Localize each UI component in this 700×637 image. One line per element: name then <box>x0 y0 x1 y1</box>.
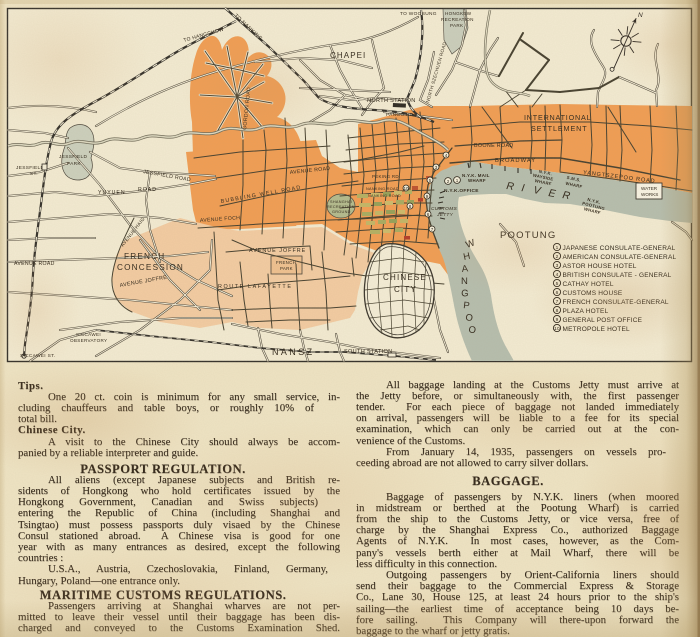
svg-text:GROUND: GROUND <box>332 210 351 214</box>
svg-text:G: G <box>461 288 469 299</box>
svg-text:METROPOLE HOTEL: METROPOLE HOTEL <box>563 326 630 333</box>
svg-text:YUYUEN: YUYUEN <box>98 190 126 196</box>
svg-text:NANKING ROAD: NANKING ROAD <box>366 187 399 191</box>
svg-text:5: 5 <box>429 178 432 183</box>
svg-text:N: N <box>461 276 468 287</box>
svg-text:ST.: ST. <box>30 171 38 177</box>
svg-text:10: 10 <box>403 186 409 191</box>
svg-text:ASTOR HOUSE HOTEL: ASTOR HOUSE HOTEL <box>563 263 637 270</box>
svg-text:SOUTH STATION: SOUTH STATION <box>344 349 392 355</box>
svg-text:JESSFIELD: JESSFIELD <box>59 154 88 160</box>
svg-text:WHARF: WHARF <box>468 178 486 183</box>
svg-text:PEKING RD.: PEKING RD. <box>372 174 400 179</box>
svg-text:NANSZ: NANSZ <box>272 347 315 357</box>
svg-text:AVENUE ROAD: AVENUE ROAD <box>14 261 55 267</box>
svg-text:PARK: PARK <box>67 161 81 167</box>
svg-text:CATHAY HOTEL: CATHAY HOTEL <box>563 281 614 288</box>
svg-text:9: 9 <box>426 194 429 199</box>
svg-text:FRENCH: FRENCH <box>124 252 165 261</box>
svg-text:CHINESE: CHINESE <box>383 273 427 282</box>
svg-text:2: 2 <box>556 254 559 260</box>
svg-text:JETTY: JETTY <box>436 212 454 218</box>
svg-text:RECREATION: RECREATION <box>441 17 474 22</box>
svg-text:FRENCH CONSULATE-GENERAL: FRENCH CONSULATE-GENERAL <box>563 299 669 306</box>
svg-text:SHANGHAI: SHANGHAI <box>330 200 352 204</box>
svg-text:R: R <box>506 180 516 193</box>
svg-text:9: 9 <box>556 317 559 323</box>
svg-text:TO WOOSUNG: TO WOOSUNG <box>400 11 437 17</box>
svg-text:7: 7 <box>556 299 559 305</box>
svg-text:P: P <box>463 300 471 312</box>
svg-text:6: 6 <box>556 290 559 296</box>
svg-text:AMERICAN CONSULATE-GENERAL: AMERICAN CONSULATE-GENERAL <box>563 254 677 261</box>
svg-text:N: N <box>638 12 643 19</box>
svg-text:1: 1 <box>456 178 459 183</box>
svg-text:NANKING ROAD: NANKING ROAD <box>368 194 401 198</box>
svg-text:SETTLEMENT: SETTLEMENT <box>531 124 588 133</box>
svg-text:CUSTOMS: CUSTOMS <box>431 206 457 212</box>
svg-text:GENERAL POST OFFICE: GENERAL POST OFFICE <box>563 317 643 324</box>
svg-text:7: 7 <box>431 227 434 232</box>
svg-text:CHAPEI: CHAPEI <box>330 51 366 60</box>
svg-text:3: 3 <box>435 165 438 170</box>
svg-text:PARK: PARK <box>280 266 293 271</box>
svg-text:CONCESSION: CONCESSION <box>117 263 184 272</box>
svg-text:RECREATION: RECREATION <box>327 205 355 209</box>
svg-text:OBSERVATORY: OBSERVATORY <box>70 338 107 343</box>
svg-text:SICCAWEI: SICCAWEI <box>76 332 101 337</box>
svg-text:PANGO RD.: PANGO RD. <box>386 112 415 118</box>
svg-text:JAPANESE CONSULATE-GENERAL: JAPANESE CONSULATE-GENERAL <box>563 245 676 252</box>
svg-text:ROAD: ROAD <box>138 187 157 193</box>
svg-text:CITY: CITY <box>394 285 417 294</box>
svg-text:N.Y.K.OFFICE: N.Y.K.OFFICE <box>444 188 479 194</box>
svg-text:ROUTE LAFAYETTE: ROUTE LAFAYETTE <box>218 284 293 290</box>
svg-text:INTERNATIONAL: INTERNATIONAL <box>524 113 591 122</box>
svg-text:4: 4 <box>445 153 448 158</box>
svg-text:6: 6 <box>427 212 430 217</box>
svg-text:SICCAWEI ST.: SICCAWEI ST. <box>20 353 55 359</box>
svg-text:4: 4 <box>556 272 559 278</box>
svg-text:8: 8 <box>409 204 412 209</box>
svg-text:1: 1 <box>556 245 559 251</box>
svg-text:AVENUE JOFFRE: AVENUE JOFFRE <box>249 248 306 254</box>
svg-text:CUSTOMS HOUSE: CUSTOMS HOUSE <box>563 290 623 297</box>
svg-text:HONGKEW: HONGKEW <box>445 11 472 16</box>
svg-text:8: 8 <box>556 308 559 314</box>
svg-text:10: 10 <box>554 326 560 332</box>
svg-text:2: 2 <box>447 179 450 184</box>
svg-text:JESSFIELD: JESSFIELD <box>16 165 45 171</box>
svg-text:BROADWAY: BROADWAY <box>495 158 536 164</box>
svg-text:POOTUNG: POOTUNG <box>500 230 556 241</box>
svg-text:WORKS: WORKS <box>641 192 658 197</box>
svg-text:3: 3 <box>556 263 559 269</box>
svg-text:BRITISH CONSULATE - GENERAL: BRITISH CONSULATE - GENERAL <box>563 272 672 279</box>
svg-text:NORTH STATION: NORTH STATION <box>367 98 416 104</box>
svg-text:5: 5 <box>556 281 559 287</box>
svg-text:PARK: PARK <box>450 23 464 28</box>
svg-text:PLAZA HOTEL: PLAZA HOTEL <box>563 308 609 315</box>
svg-text:WATER: WATER <box>641 186 658 191</box>
svg-text:BOONE ROAD: BOONE ROAD <box>474 143 514 149</box>
svg-text:FRENCH: FRENCH <box>276 260 296 265</box>
